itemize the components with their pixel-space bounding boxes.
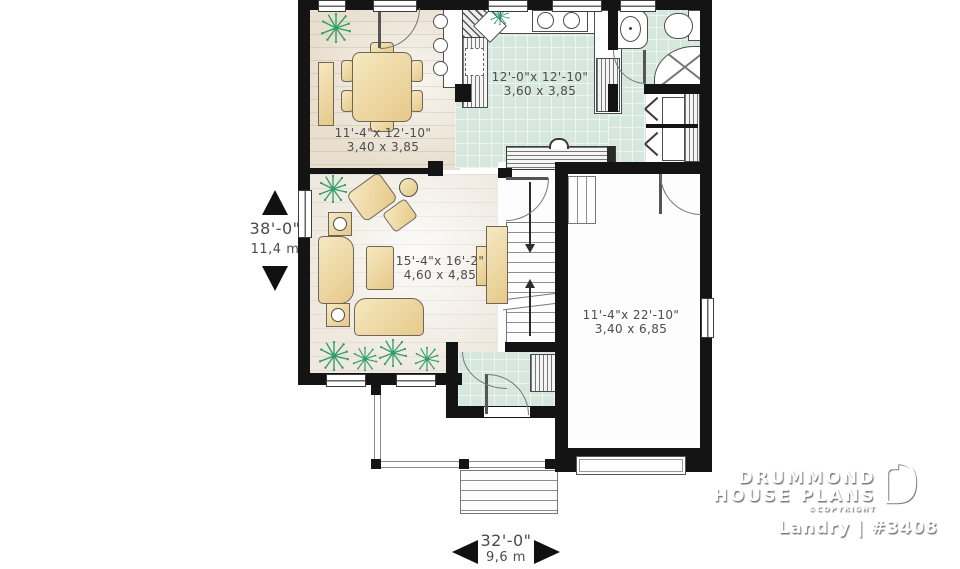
half-wall-post	[428, 161, 443, 176]
floor-plan-image: 11'-4"x 12'-10" 3,40 x 3,85 12'-0"x 12'-…	[0, 0, 960, 569]
wall-bath-west	[608, 0, 618, 50]
plan-title: Landry | #3408	[760, 518, 938, 538]
table-lamp	[333, 217, 347, 231]
window	[326, 374, 366, 387]
window	[373, 0, 417, 12]
garage-imperial: 11'-4"x 22'-10"	[583, 308, 680, 322]
window	[318, 0, 346, 12]
plant-icon	[378, 338, 408, 368]
wall-right	[700, 0, 712, 472]
garage-door	[576, 456, 686, 475]
porch-rail-left	[374, 390, 381, 468]
wall-bath-south	[644, 84, 712, 94]
garage-metric: 3,40 x 6,85	[583, 322, 680, 336]
wall-closet-divider	[646, 124, 698, 128]
kitchen-imperial: 12'-0"x 12'-10"	[492, 70, 589, 84]
piano	[486, 226, 508, 304]
living-metric: 4,60 x 4,85	[396, 268, 485, 282]
kitchen-metric: 3,60 x 3,85	[492, 84, 589, 98]
buffet	[318, 62, 334, 126]
porch-steps	[460, 470, 558, 514]
plant-icon	[318, 174, 348, 204]
dimension-arrow-up	[262, 190, 288, 215]
porch-post	[459, 459, 469, 469]
bar-stool	[433, 38, 448, 53]
brand-copyright: ©COPYRIGHT	[700, 505, 876, 513]
bifold-closet-door	[644, 128, 661, 158]
bar-stool	[433, 61, 448, 76]
plant-icon	[320, 12, 352, 44]
brand-logo-icon	[880, 458, 920, 508]
window	[701, 298, 714, 338]
sofa	[354, 298, 424, 336]
plant-icon	[318, 340, 350, 372]
porch-post	[371, 459, 381, 469]
closet-shelf	[662, 97, 686, 125]
wall-bar-end	[455, 84, 471, 102]
window	[396, 374, 436, 387]
faucet	[549, 138, 569, 149]
porch-post	[545, 459, 555, 469]
entry-closet	[530, 354, 556, 392]
wall-bath-west-lower	[608, 84, 618, 112]
stair-up-arrow	[529, 288, 531, 336]
table-lamp	[331, 308, 345, 322]
half-wall-dining-living	[310, 168, 432, 174]
coffee-table	[366, 246, 394, 290]
sofa	[318, 236, 354, 304]
bar-stool	[433, 14, 448, 29]
floor-lamp	[399, 178, 418, 197]
kitchen-label: 12'-0"x 12'-10" 3,60 x 3,85	[492, 70, 589, 98]
sink-drain	[629, 27, 632, 30]
dimension-arrow-down	[262, 266, 288, 291]
living-room-label: 15'-4"x 16'-2" 4,60 x 4,85	[396, 254, 485, 282]
plant-icon	[414, 346, 440, 372]
window	[620, 0, 656, 12]
plant-icon	[352, 346, 378, 372]
dining-metric: 3,40 x 3,85	[335, 140, 432, 154]
wall-garage-north	[555, 162, 712, 174]
living-imperial: 15'-4"x 16'-2"	[396, 254, 485, 268]
brand-name-line2: HOUSE PLANS	[700, 486, 876, 506]
dishwasher	[465, 48, 484, 76]
dimension-arrow-right	[534, 540, 560, 564]
dining-room-label: 11'-4"x 12'-10" 3,40 x 3,85	[335, 126, 432, 154]
depth-imperial: 38'-0"	[240, 219, 310, 238]
depth-metric: 11,4 m	[240, 242, 310, 257]
cooktop-burner	[563, 12, 580, 29]
window	[552, 0, 602, 12]
dining-imperial: 11'-4"x 12'-10"	[335, 126, 432, 140]
bifold-closet-door	[644, 94, 661, 122]
dining-table	[352, 52, 412, 122]
wall-garage-west	[555, 162, 568, 460]
toilet-bowl	[664, 13, 693, 39]
wall-living-south	[298, 373, 462, 385]
width-metric: 9,6 m	[471, 550, 541, 565]
window	[488, 0, 528, 12]
porch-post	[371, 385, 381, 395]
width-imperial: 32'-0"	[471, 531, 541, 550]
garage-label: 11'-4"x 22'-10" 3,40 x 6,85	[583, 308, 680, 336]
cooktop-burner	[537, 12, 554, 29]
brand-name-line1: DRUMMOND	[700, 468, 876, 488]
